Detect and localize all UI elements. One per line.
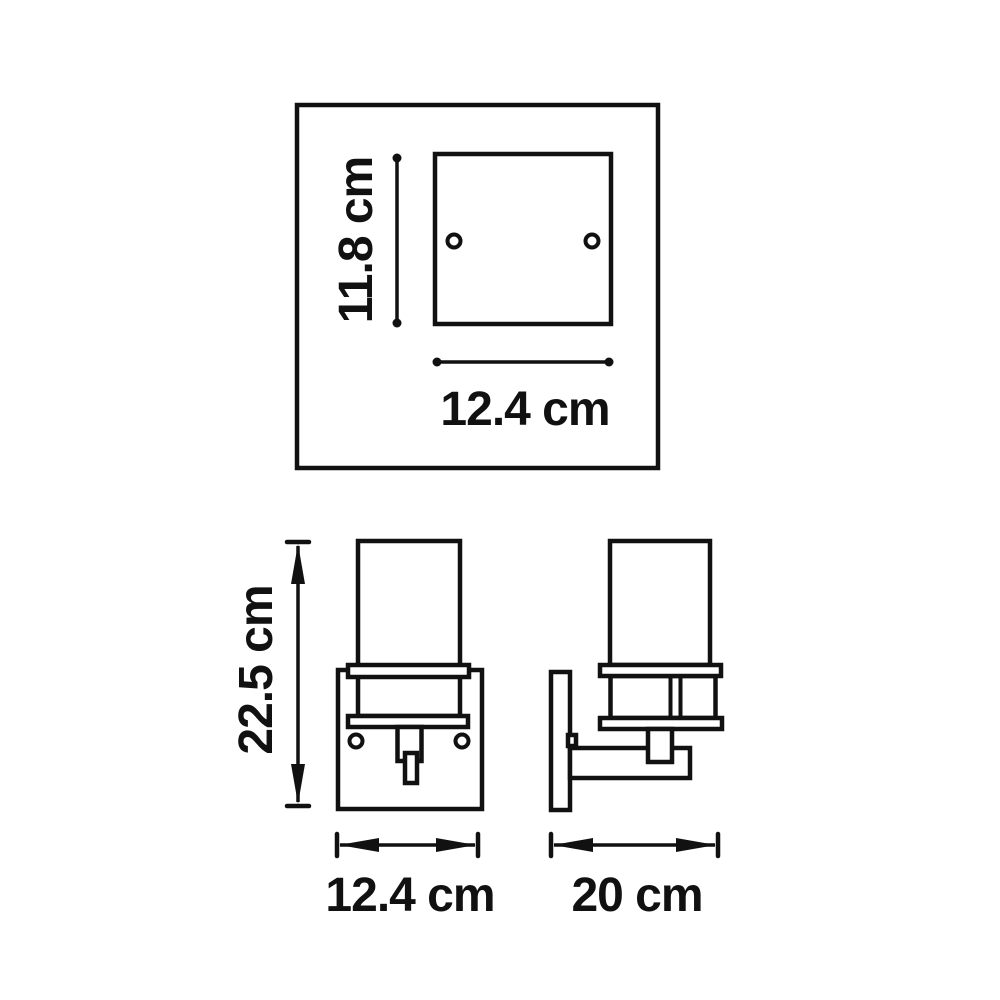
plate-detail-side bbox=[568, 735, 576, 746]
dimension-fixture-height: 22.5 cm bbox=[230, 542, 309, 806]
arrowhead-right bbox=[676, 838, 716, 852]
switch-knob-front bbox=[405, 753, 417, 783]
glass-shade-front bbox=[358, 541, 460, 716]
plate-height-label: 11.8 cm bbox=[330, 157, 383, 323]
top-view: 11.8 cm 12.4 cm bbox=[297, 105, 658, 468]
arrowhead-left bbox=[553, 838, 593, 852]
dimension-dot-right bbox=[605, 358, 614, 367]
socket-stem-side bbox=[648, 729, 672, 762]
plate-width-label: 12.4 cm bbox=[440, 383, 609, 436]
arrowhead-up bbox=[291, 544, 305, 584]
shade-ring-top-front bbox=[348, 665, 469, 677]
dimension-side-depth: 20 cm bbox=[551, 834, 718, 922]
dimension-dot-bottom bbox=[393, 319, 402, 328]
shade-ring-top-side bbox=[600, 665, 721, 676]
shade-fitter-side bbox=[611, 676, 716, 718]
front-view bbox=[338, 541, 482, 809]
side-depth-label: 20 cm bbox=[571, 869, 702, 922]
dimension-dot-top bbox=[393, 154, 402, 163]
fixture-height-label: 22.5 cm bbox=[230, 585, 283, 754]
dimension-dot-left bbox=[433, 358, 442, 367]
sconce-dimension-drawing: 11.8 cm 12.4 cm bbox=[0, 0, 1000, 1000]
side-view bbox=[551, 541, 722, 810]
arrowhead-right bbox=[436, 838, 476, 852]
glass-shade-side bbox=[610, 541, 710, 665]
front-width-label: 12.4 cm bbox=[325, 869, 494, 922]
arrowhead-down bbox=[291, 764, 305, 804]
dimension-front-width: 12.4 cm bbox=[325, 834, 494, 922]
technical-drawing-page: 11.8 cm 12.4 cm bbox=[0, 0, 1000, 1000]
arrowhead-left bbox=[339, 838, 379, 852]
